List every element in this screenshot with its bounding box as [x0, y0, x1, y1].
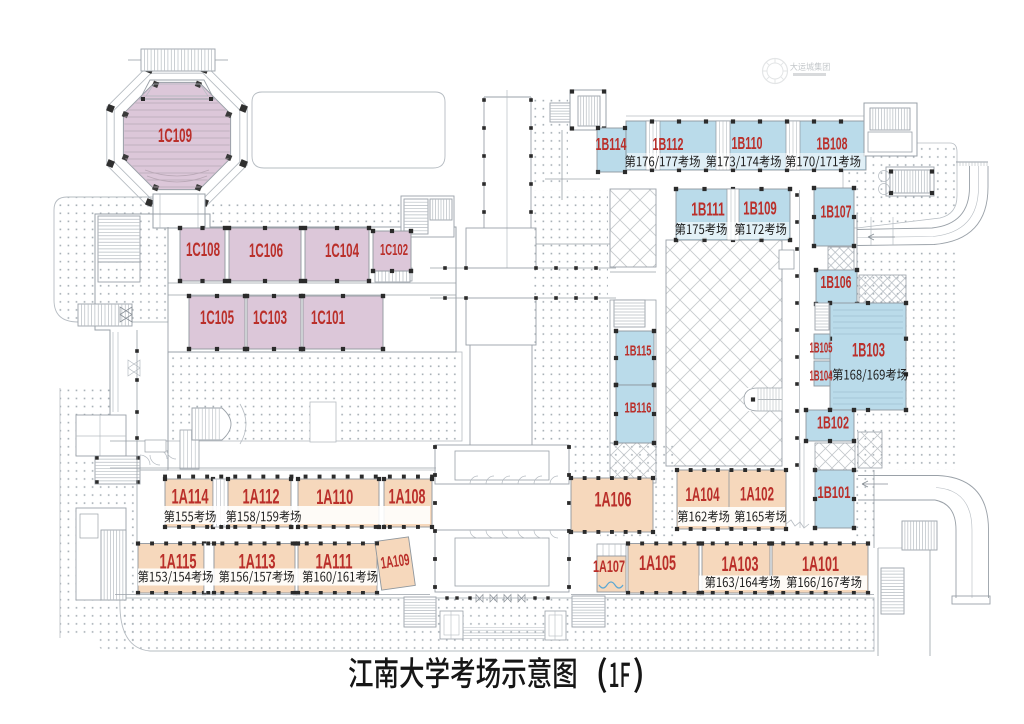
svg-text:1B106: 1B106: [821, 272, 852, 292]
svg-text:1A112: 1A112: [243, 486, 280, 509]
svg-text:1C109: 1C109: [158, 126, 192, 147]
svg-text:1B110: 1B110: [732, 133, 763, 153]
svg-text:1A102: 1A102: [740, 484, 774, 505]
svg-text:1A104: 1A104: [686, 485, 720, 506]
svg-text:1C105: 1C105: [200, 308, 234, 329]
svg-text:1C101: 1C101: [311, 308, 345, 329]
svg-text:1B101: 1B101: [818, 483, 851, 502]
svg-text:1A108: 1A108: [389, 486, 426, 509]
svg-text:1B111: 1B111: [691, 200, 725, 220]
svg-text:1C103: 1C103: [253, 308, 287, 329]
svg-text:1B108: 1B108: [817, 133, 848, 153]
svg-text:1A113: 1A113: [239, 551, 276, 574]
svg-text:1C108: 1C108: [186, 240, 220, 261]
svg-text:1B109: 1B109: [743, 199, 777, 219]
svg-text:1A103: 1A103: [722, 553, 759, 576]
svg-text:1B107: 1B107: [821, 201, 852, 221]
svg-text:1A106: 1A106: [595, 489, 632, 512]
svg-text:1A114: 1A114: [172, 486, 209, 509]
svg-text:1A111: 1A111: [316, 551, 353, 574]
svg-text:1B114: 1B114: [596, 134, 627, 154]
svg-text:1B105: 1B105: [810, 339, 833, 356]
svg-text:1C102: 1C102: [380, 242, 408, 259]
svg-text:1B115: 1B115: [625, 342, 652, 359]
svg-text:1A110: 1A110: [316, 486, 353, 509]
svg-text:1B103: 1B103: [852, 340, 885, 361]
svg-text:1A101: 1A101: [802, 553, 839, 576]
svg-text:1B102: 1B102: [817, 412, 849, 432]
svg-text:1B116: 1B116: [625, 399, 652, 416]
svg-text:1C104: 1C104: [325, 241, 359, 262]
svg-text:1A115: 1A115: [160, 551, 197, 574]
svg-text:1C106: 1C106: [249, 241, 283, 262]
svg-text:1A105: 1A105: [639, 552, 676, 575]
svg-text:1B104: 1B104: [810, 367, 833, 384]
svg-text:1A107: 1A107: [593, 557, 625, 576]
svg-text:1B112: 1B112: [653, 134, 684, 154]
